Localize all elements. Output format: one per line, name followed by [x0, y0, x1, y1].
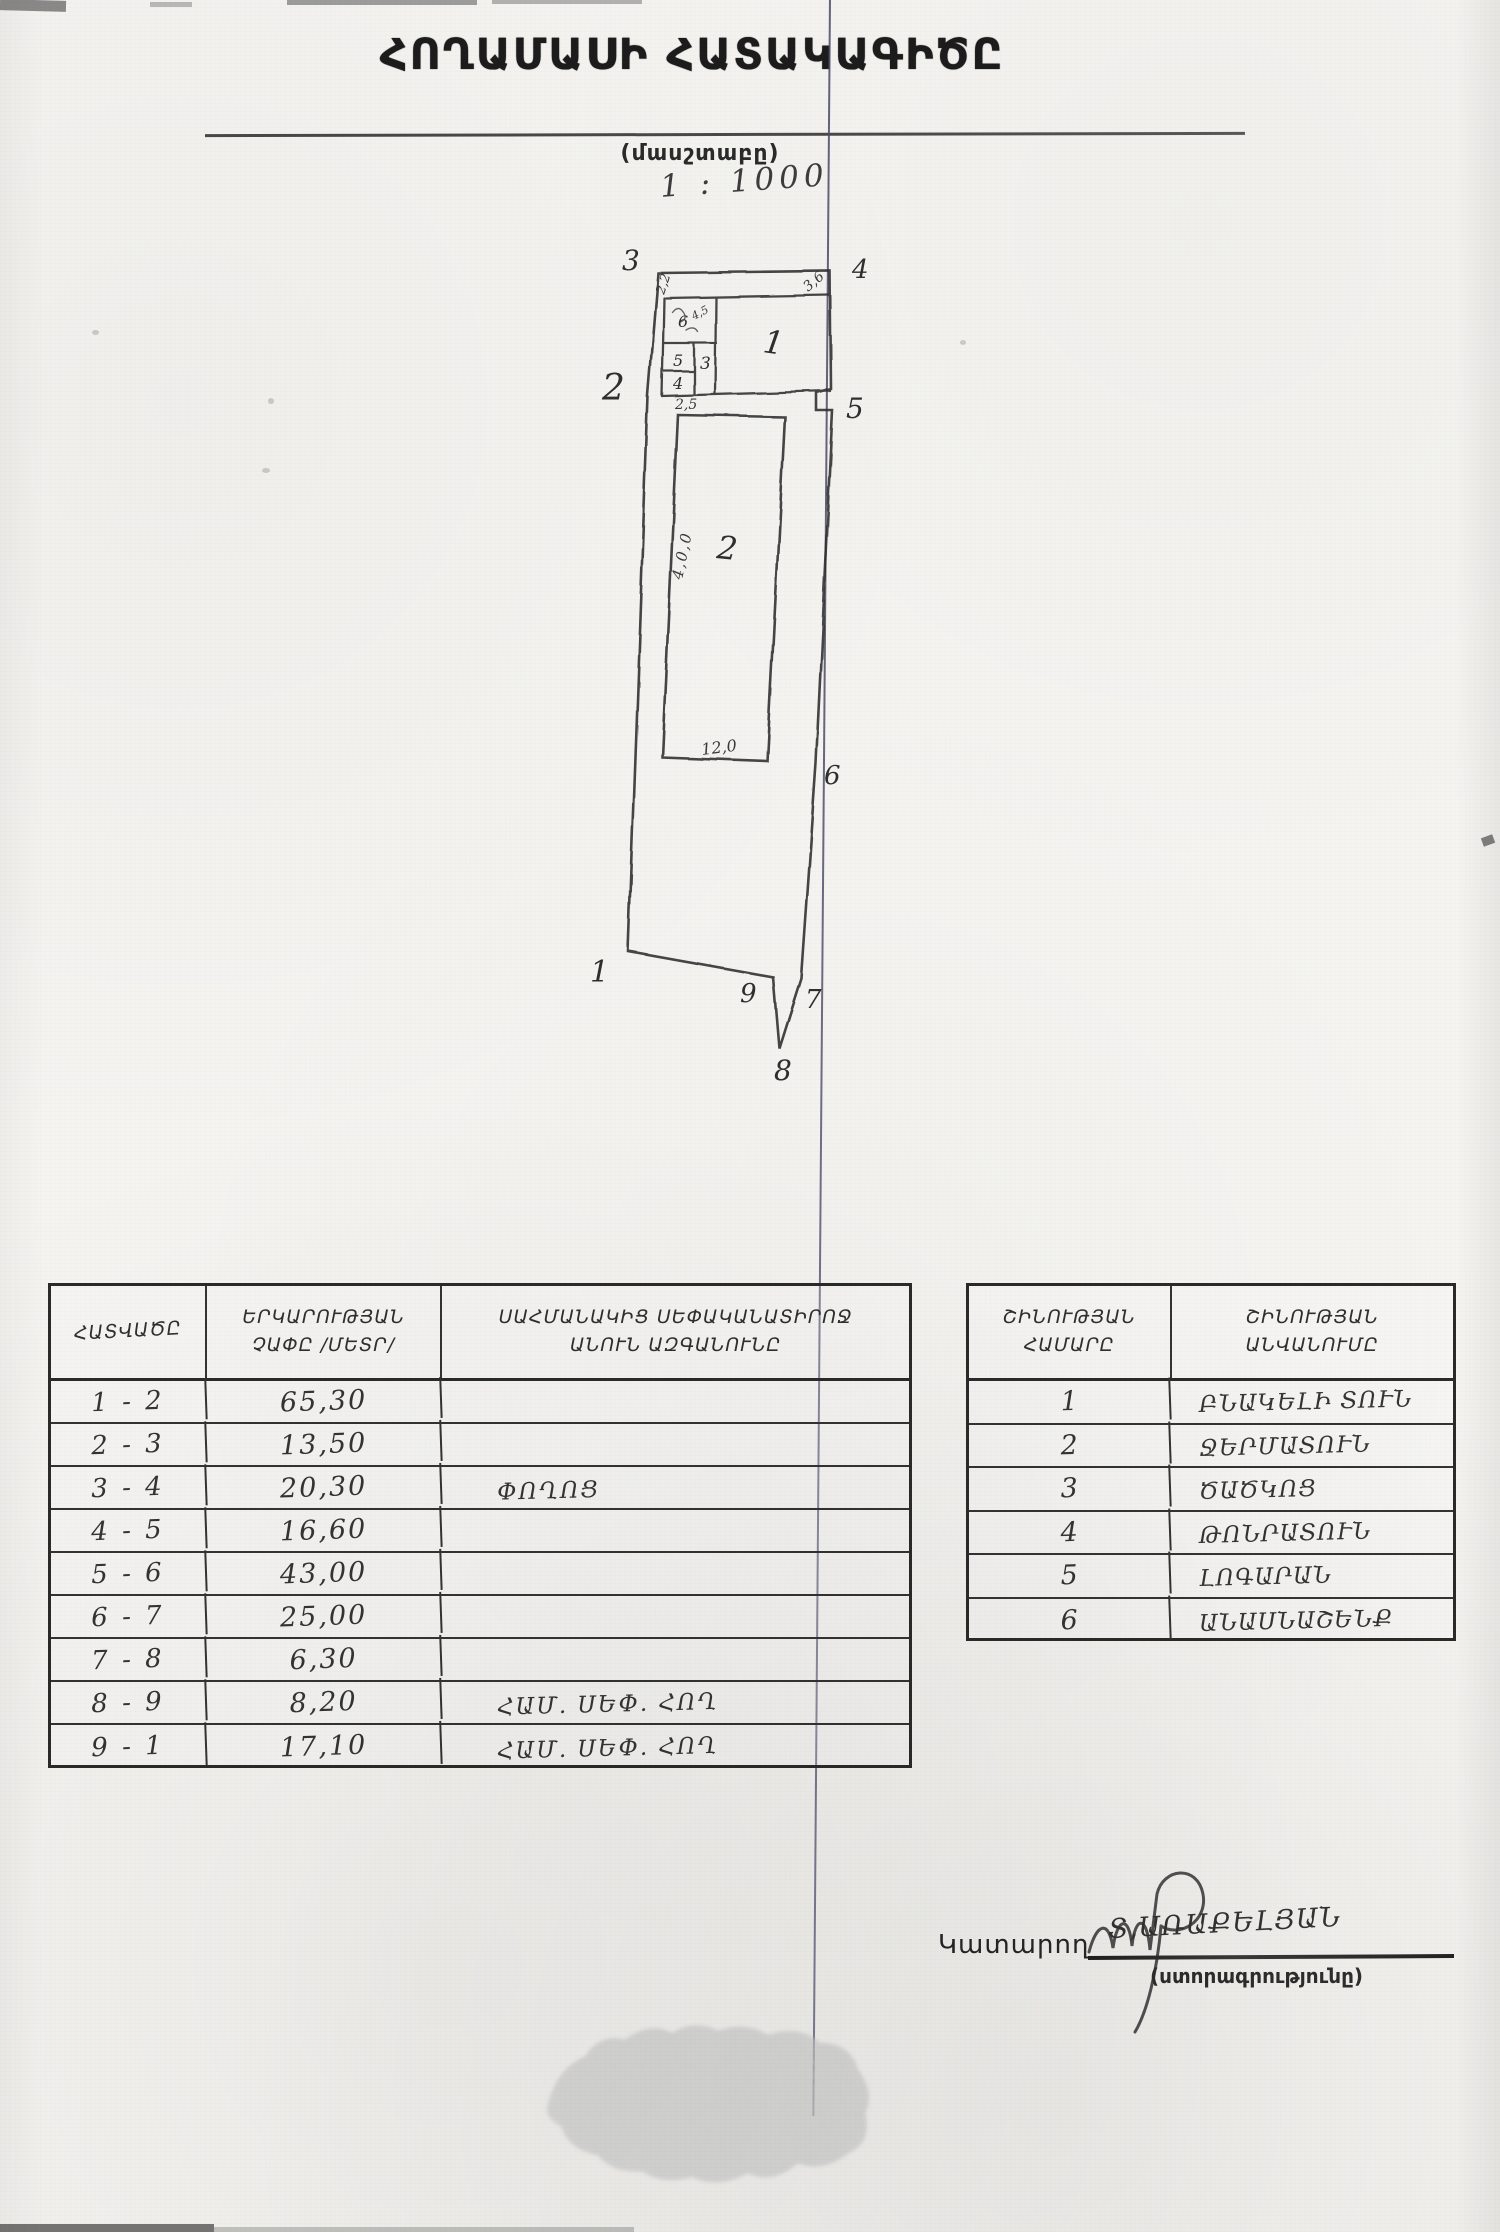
segment-cell: 1 - 2 — [50, 1378, 207, 1424]
col-header-building-name-line1: ՇԻՆՈՒԹՅԱՆ — [1246, 1304, 1379, 1332]
length-cell: 20,30 — [206, 1463, 443, 1512]
buildings-outline — [662, 295, 830, 396]
buildings-table: ՇԻՆՈՒԹՅԱՆ ՀԱՄԱՐԸ ՇԻՆՈՒԹՅԱՆ ԱՆՎԱՆՈՒՄԸ 1 Բ… — [966, 1283, 1456, 1641]
point-label-1: 1 — [590, 955, 609, 990]
table-row: 6 - 7 25,00 — [51, 1596, 909, 1639]
stamp-blob — [520, 1995, 920, 2225]
boundary-segments-table: ՀԱՏՎԱԾԸ ԵՐԿԱՐՈՒԹՅԱՆ ՉԱՓԸ /ՄԵՏՐ/ ՍԱՀՄԱՆԱԿ… — [48, 1283, 912, 1768]
scan-speck — [268, 398, 274, 404]
col-header-neighbor: ՍԱՀՄԱՆԱԿԻՑ ՍԵՓԱԿԱՆԱՏԻՐՈՋ ԱՆՈՒՆ ԱԶԳԱՆՈՒՆԸ — [442, 1286, 909, 1378]
point-label-9: 9 — [740, 979, 757, 1009]
table-row: 3 ԾԱԾԿՈՑ — [969, 1468, 1453, 1512]
building-number-cell: 6 — [968, 1595, 1172, 1646]
building-name-cell: ԼՈԳԱՐԱՆ — [1171, 1552, 1454, 1601]
building-number-cell: 5 — [968, 1552, 1172, 1601]
length-cell: 13,50 — [206, 1420, 443, 1469]
table-row: 6 ԱՆԱՍՆԱՇԵՆՔ — [969, 1599, 1453, 1643]
length-cell: 16,60 — [206, 1506, 443, 1555]
length-cell: 43,00 — [206, 1549, 443, 1598]
scan-artifact — [1481, 834, 1495, 847]
table-row: 4 - 5 16,60 — [51, 1510, 909, 1553]
segment-cell: 5 - 6 — [50, 1550, 207, 1596]
room-label-3: 3 — [700, 354, 711, 374]
executor-label: Կատարող — [938, 1930, 1089, 1960]
scan-artifact — [492, 0, 642, 4]
room-label-5: 5 — [673, 351, 683, 370]
table-row: 4 ԹՈՆՐԱՏՈՒՆ — [969, 1512, 1453, 1556]
signature-line — [1088, 1954, 1454, 1960]
table-row: 2 - 3 13,50 — [51, 1424, 909, 1467]
col-header-building-number-line1: ՇԻՆՈՒԹՅԱՆ — [1003, 1304, 1136, 1332]
greenhouse-outline — [662, 415, 785, 761]
room-label-1: 1 — [761, 322, 786, 362]
col-header-neighbor-line1: ՍԱՀՄԱՆԱԿԻՑ ՍԵՓԱԿԱՆԱՏԻՐՈՋ — [499, 1304, 853, 1332]
building-name-cell: ԲՆԱԿԵԼԻ ՏՈՒՆ — [1171, 1377, 1454, 1426]
scan-artifact — [150, 2, 192, 7]
scan-speck — [262, 468, 270, 473]
signature-caption: (ստորագրությունը) — [1150, 1964, 1363, 1988]
boundary-point-labels: 1 2 3 4 5 6 7 8 9 — [590, 244, 869, 1087]
point-label-2: 2 — [601, 368, 625, 409]
table-row: 2 ՋԵՐՄԱՏՈՒՆ — [969, 1425, 1453, 1469]
table-row: 9 - 1 17,10 ՀԱՄ. ՍԵՓ. ՀՈՂ — [51, 1725, 909, 1768]
building-number-cell: 1 — [968, 1377, 1172, 1426]
table-row: 1 ԲՆԱԿԵԼԻ ՏՈՒՆ — [969, 1381, 1453, 1425]
building-number-cell: 4 — [968, 1508, 1172, 1557]
signature-scribble — [1075, 1852, 1245, 2052]
scan-artifact — [214, 2227, 634, 2232]
segment-cell: 6 - 7 — [50, 1593, 207, 1639]
col-header-length-line2: ՉԱՓԸ /ՄԵՏՐ/ — [252, 1332, 395, 1360]
scanned-land-plot-document: ՀՈՂԱՄԱՍԻ ՀԱՏԱԿԱԳԻԾԸ (մասշտաբը) 1 : 1000 — [0, 0, 1500, 2232]
point-label-4: 4 — [851, 255, 869, 285]
plot-sketch: 1 2 3 4 5 6 7 8 9 1 2 3 4 5 6 2,2 3,6 2,… — [540, 170, 920, 1100]
parcel-boundary — [628, 271, 833, 1048]
point-label-3: 3 — [622, 244, 640, 277]
room-label-6: 6 — [678, 312, 688, 331]
length-cell: 17,10 — [206, 1721, 443, 1772]
building-name-cell: ԾԱԾԿՈՑ — [1171, 1465, 1454, 1514]
scan-artifact — [0, 0, 66, 12]
scale-caption: (մասշտաբը) — [420, 141, 980, 166]
scan-speck — [960, 340, 966, 345]
col-header-building-number: ՇԻՆՈՒԹՅԱՆ ՀԱՄԱՐԸ — [969, 1286, 1172, 1378]
table-row: 1 - 2 65,30 — [51, 1381, 909, 1424]
point-label-5: 5 — [846, 392, 864, 425]
scan-speck — [92, 330, 99, 335]
point-label-8: 8 — [774, 1054, 792, 1087]
dim-2-2: 2,2 — [653, 272, 674, 297]
scan-artifact — [287, 0, 477, 5]
table-row: 3 - 4 20,30 ՓՈՂՈՑ — [51, 1467, 909, 1510]
length-cell: 65,30 — [206, 1377, 443, 1426]
point-label-7: 7 — [805, 985, 822, 1015]
length-cell: 25,00 — [206, 1592, 443, 1641]
building-name-cell: ՋԵՐՄԱՏՈՒՆ — [1171, 1421, 1454, 1470]
length-cell: 8,20 — [206, 1678, 443, 1727]
segment-cell: 8 - 9 — [50, 1679, 207, 1725]
table-row: 5 - 6 43,00 — [51, 1553, 909, 1596]
col-header-building-name-line2: ԱՆՎԱՆՈՒՄԸ — [1246, 1332, 1379, 1360]
building-number-cell: 2 — [968, 1421, 1172, 1470]
building-name-cell: ԹՈՆՐԱՏՈՒՆ — [1171, 1508, 1454, 1557]
page-title: ՀՈՂԱՄԱՍԻ ՀԱՏԱԿԱԳԻԾԸ — [0, 30, 1384, 80]
col-header-segment: ՀԱՏՎԱԾԸ — [51, 1286, 207, 1378]
length-cell: 6,30 — [206, 1635, 443, 1684]
room-labels: 1 2 3 4 5 6 — [672, 312, 786, 568]
segment-cell: 7 - 8 — [50, 1636, 207, 1682]
scan-artifact — [0, 2224, 214, 2232]
col-header-length: ԵՐԿԱՐՈՒԹՅԱՆ ՉԱՓԸ /ՄԵՏՐ/ — [207, 1286, 442, 1378]
segment-cell: 3 - 4 — [50, 1464, 207, 1510]
col-header-segment-text: ՀԱՏՎԱԾԸ — [73, 1315, 182, 1348]
segment-cell: 4 - 5 — [50, 1507, 207, 1553]
col-header-building-name: ՇԻՆՈՒԹՅԱՆ ԱՆՎԱՆՈՒՄԸ — [1172, 1286, 1454, 1378]
dim-4-5: 4,5 — [688, 303, 710, 323]
room-label-4: 4 — [672, 374, 683, 393]
dim-12-0: 12,0 — [700, 736, 738, 759]
segment-cell: 9 - 1 — [50, 1722, 207, 1770]
title-underline — [205, 132, 1245, 137]
segment-cell: 2 - 3 — [50, 1421, 207, 1467]
room-label-2: 2 — [714, 528, 739, 568]
col-header-neighbor-line2: ԱՆՈՒՆ ԱԶԳԱՆՈՒՆԸ — [570, 1332, 781, 1360]
dim-2-5: 2,5 — [674, 397, 697, 413]
point-label-6: 6 — [824, 761, 841, 791]
building-name-cell: ԱՆԱՍՆԱՇԵՆՔ — [1171, 1595, 1454, 1646]
col-header-building-number-line2: ՀԱՄԱՐԸ — [1024, 1332, 1115, 1360]
building-number-cell: 3 — [968, 1465, 1172, 1514]
table-row: 5 ԼՈԳԱՐԱՆ — [969, 1555, 1453, 1599]
table-row: 7 - 8 6,30 — [51, 1639, 909, 1682]
table-row: 8 - 9 8,20 ՀԱՄ. ՍԵՓ. ՀՈՂ — [51, 1682, 909, 1725]
col-header-length-line1: ԵՐԿԱՐՈՒԹՅԱՆ — [242, 1304, 404, 1332]
